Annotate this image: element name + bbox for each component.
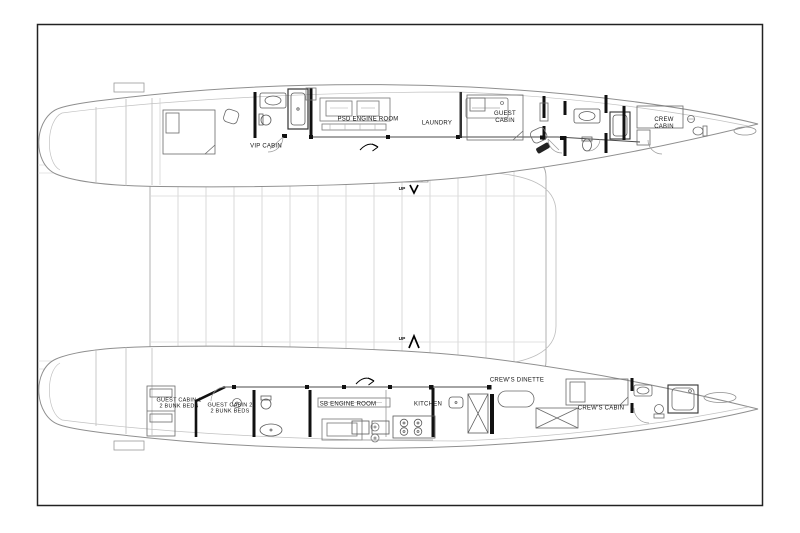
label-guest-cabin-forward: GUEST CABIN [494,111,516,125]
label-crews-cabin: CREW'S CABIN [578,406,624,413]
deck-plan-drawing [0,0,800,533]
label-kitchen: KITCHEN [414,402,442,409]
label-guest-cabin-2: GUEST CABIN 2 2 BUNK BEDS [207,403,252,416]
stern-hatch [114,441,144,450]
stern-hatch [114,83,144,92]
label-sb-engine-room: SB ENGINE ROOM [320,402,377,409]
floor-plan-canvas: VIP CABIN PSD ENGINE ROOM LAUNDRY GUEST … [0,0,800,533]
bridge-deck [38,160,556,378]
label-psd-engine-room: PSD ENGINE ROOM [337,117,398,124]
label-up-aft: UP [399,337,406,343]
label-laundry: LAUNDRY [422,121,452,128]
label-crews-dinette: CREW'S DINETTE [490,378,544,385]
label-up-forward: UP [399,187,406,193]
label-crew-cabin-forward: CREW CABIN [654,117,674,131]
port-hull [39,83,758,187]
up-arrow-forward [410,185,418,193]
label-guest-cabin-1: GUEST CABIN 1 2 BUNK BEDS [156,398,201,411]
label-vip-cabin: VIP CABIN [250,144,282,151]
starboard-hull [39,346,758,450]
bow-hatch [734,127,756,135]
deck-grid-lines [178,161,514,377]
